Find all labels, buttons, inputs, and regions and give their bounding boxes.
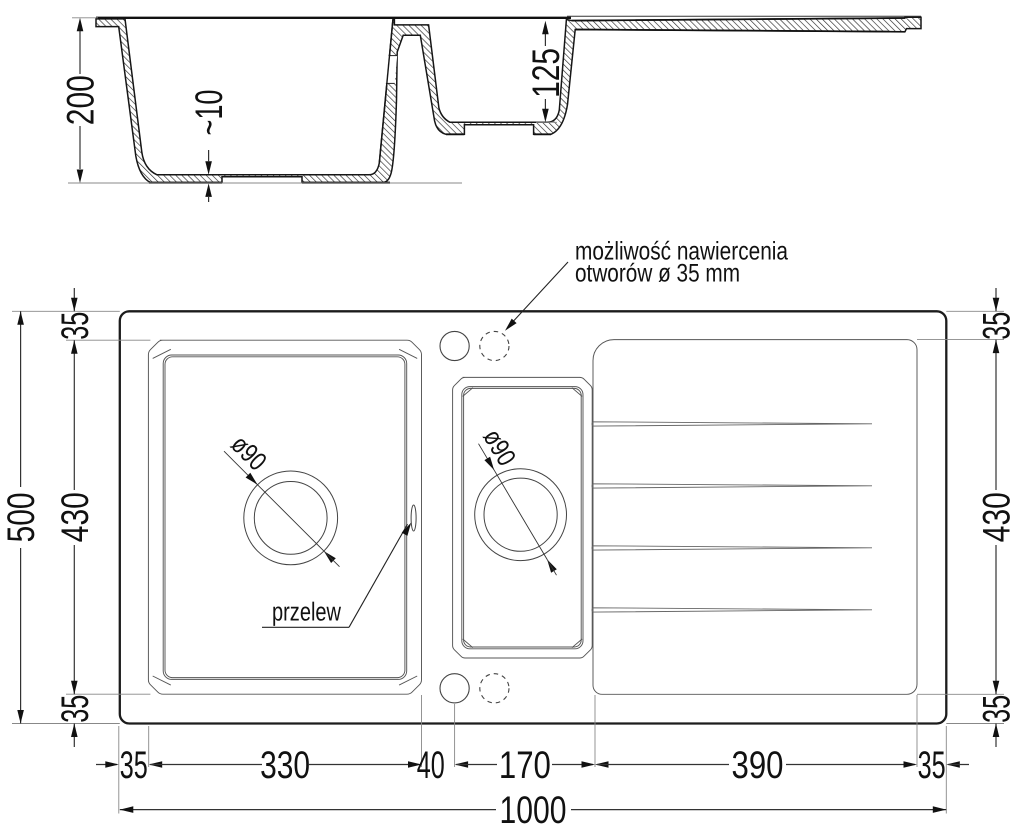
svg-text:otworów ø 35 mm: otworów ø 35 mm [575, 260, 740, 288]
svg-text:35: 35 [918, 744, 946, 787]
svg-text:125: 125 [525, 48, 568, 98]
svg-text:430: 430 [976, 492, 1019, 542]
svg-text:35: 35 [976, 312, 1019, 340]
svg-text:170: 170 [499, 744, 551, 787]
svg-text:390: 390 [732, 744, 784, 787]
svg-text:~10: ~10 [188, 90, 231, 136]
svg-text:35: 35 [54, 695, 97, 723]
svg-text:przelew: przelew [272, 597, 341, 627]
svg-text:35: 35 [120, 744, 148, 787]
svg-text:35: 35 [976, 695, 1019, 723]
svg-text:35: 35 [54, 312, 97, 340]
svg-text:40: 40 [417, 744, 445, 787]
svg-text:430: 430 [54, 492, 97, 542]
svg-text:500: 500 [0, 492, 43, 542]
svg-text:200: 200 [60, 75, 103, 125]
svg-text:330: 330 [260, 744, 310, 787]
svg-text:1000: 1000 [500, 789, 567, 827]
